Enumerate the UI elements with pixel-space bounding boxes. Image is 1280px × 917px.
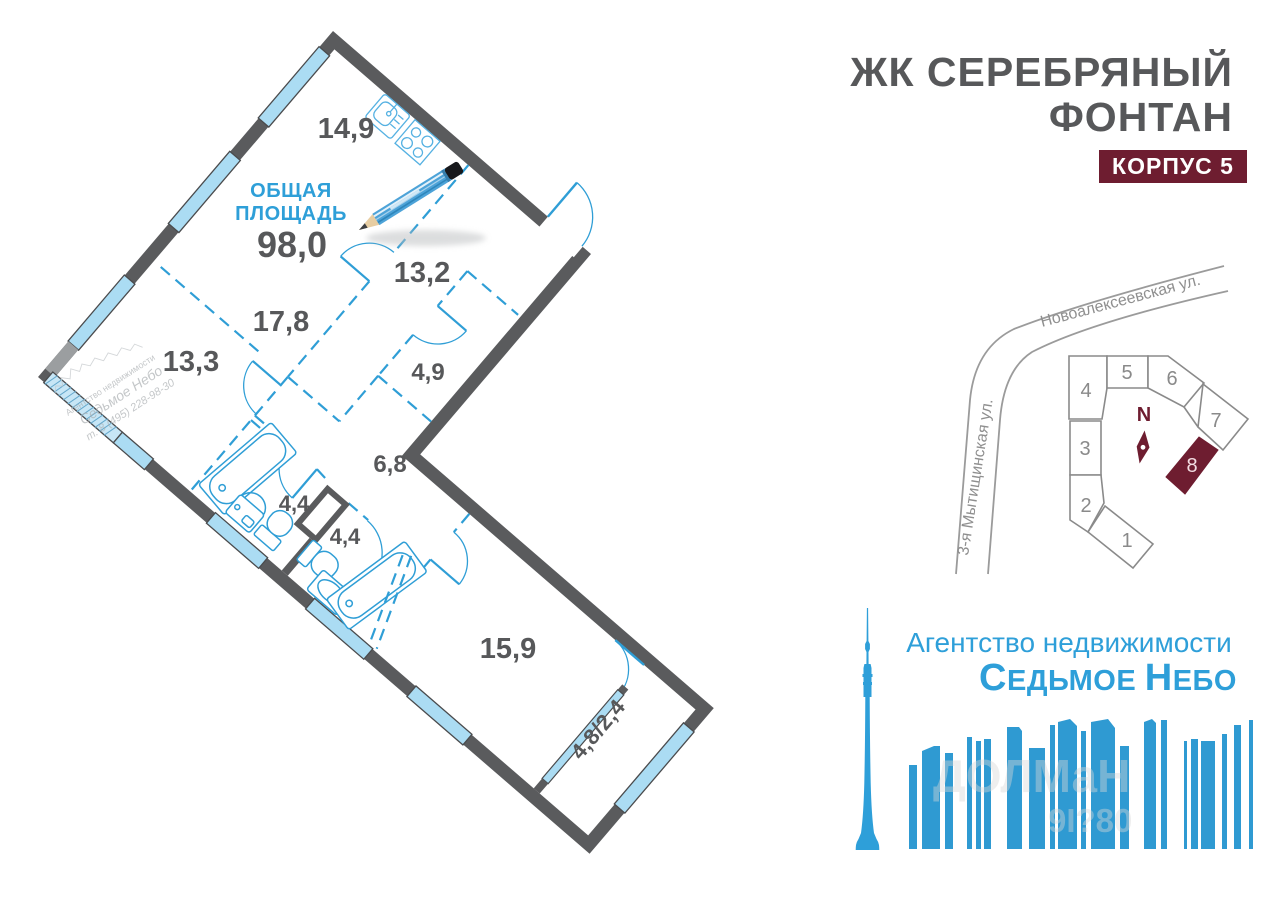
svg-text:КОРПУС 5: КОРПУС 5	[1112, 153, 1234, 179]
svg-text:7: 7	[1210, 410, 1221, 432]
svg-text:5: 5	[1121, 362, 1132, 384]
svg-text:6,8: 6,8	[373, 451, 406, 478]
svg-text:13,3: 13,3	[163, 346, 219, 378]
svg-text:4,4: 4,4	[330, 524, 361, 549]
svg-text:ОБЩАЯ: ОБЩАЯ	[250, 180, 332, 202]
svg-text:14,9: 14,9	[318, 113, 374, 145]
svg-text:8: 8	[1186, 455, 1197, 477]
svg-text:ДОЛМаН: ДОЛМаН	[933, 750, 1130, 802]
svg-text:N: N	[1137, 404, 1151, 426]
svg-text:9І?80: 9І?80	[1048, 802, 1132, 839]
svg-text:4,4: 4,4	[279, 491, 310, 516]
svg-text:15,9: 15,9	[480, 633, 536, 665]
svg-text:17,8: 17,8	[253, 306, 309, 338]
svg-text:2: 2	[1080, 495, 1091, 517]
svg-text:ПЛОЩАДЬ: ПЛОЩАДЬ	[235, 203, 347, 225]
svg-text:ФОНТАН: ФОНТАН	[1049, 94, 1233, 140]
svg-text:1: 1	[1121, 530, 1132, 552]
svg-text:Агентство недвижимости: Агентство недвижимости	[906, 627, 1232, 658]
svg-text:3: 3	[1079, 438, 1090, 460]
svg-text:98,0: 98,0	[257, 224, 327, 265]
svg-text:6: 6	[1166, 368, 1177, 390]
svg-text:4: 4	[1080, 380, 1091, 402]
svg-text:13,2: 13,2	[394, 257, 450, 289]
svg-text:ЖК СЕРЕБРЯНЫЙ: ЖК СЕРЕБРЯНЫЙ	[849, 49, 1233, 95]
svg-text:4,9: 4,9	[411, 359, 444, 386]
